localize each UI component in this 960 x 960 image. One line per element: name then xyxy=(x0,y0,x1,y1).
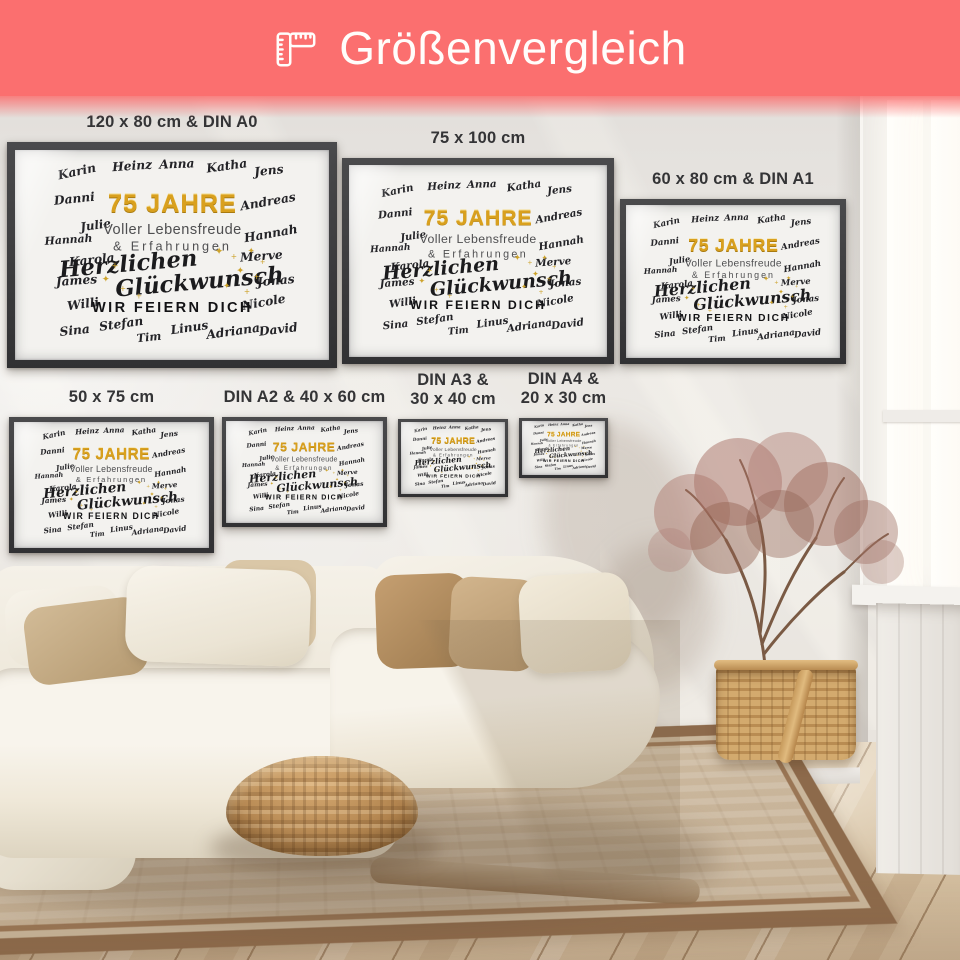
pillow-cream-right xyxy=(518,571,633,675)
page-title: Größenvergleich xyxy=(339,21,687,75)
pillow-white-big xyxy=(124,565,311,667)
header-banner: Größenvergleich xyxy=(0,0,960,96)
size-comparison-graphic: 120 x 80 cm & DIN A0KarinHeinzAnnaKathaJ… xyxy=(0,0,960,960)
ruler-icon xyxy=(273,25,319,71)
wicker-pouf xyxy=(226,756,418,856)
banner-fade xyxy=(0,96,960,118)
basket-rim xyxy=(714,660,858,670)
